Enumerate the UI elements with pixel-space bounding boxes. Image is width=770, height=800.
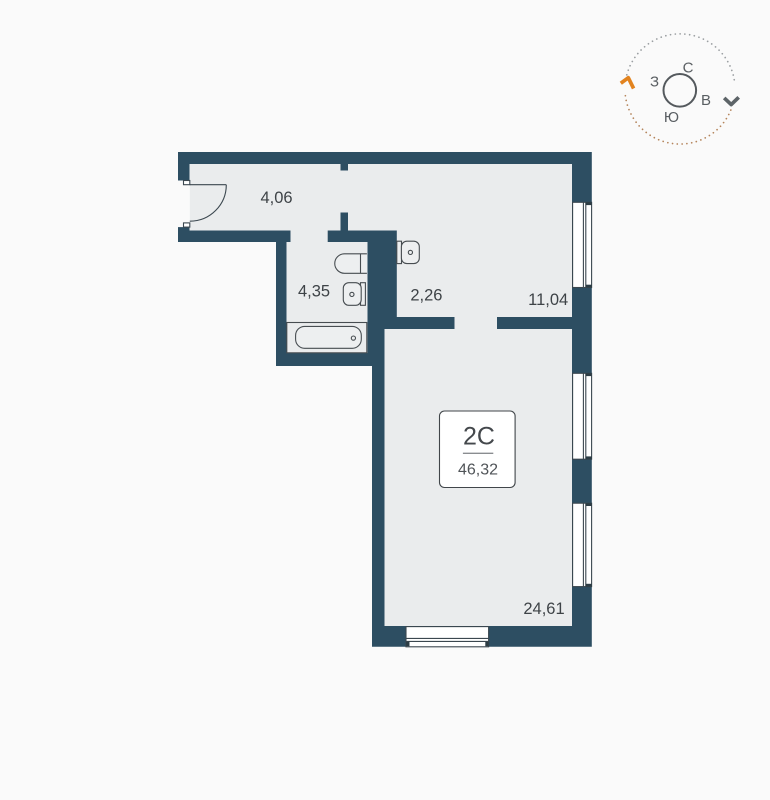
svg-text:24,61: 24,61 bbox=[523, 600, 564, 618]
svg-text:4,06: 4,06 bbox=[260, 189, 292, 207]
svg-text:С: С bbox=[683, 60, 694, 77]
svg-text:4,35: 4,35 bbox=[298, 283, 330, 301]
svg-text:2С: 2С bbox=[463, 423, 495, 451]
svg-text:З: З bbox=[650, 74, 659, 91]
svg-text:46,32: 46,32 bbox=[458, 462, 498, 479]
svg-text:В: В bbox=[701, 92, 711, 109]
svg-text:Ю: Ю bbox=[664, 109, 679, 126]
svg-text:2,26: 2,26 bbox=[410, 286, 442, 304]
svg-text:11,04: 11,04 bbox=[528, 291, 568, 309]
